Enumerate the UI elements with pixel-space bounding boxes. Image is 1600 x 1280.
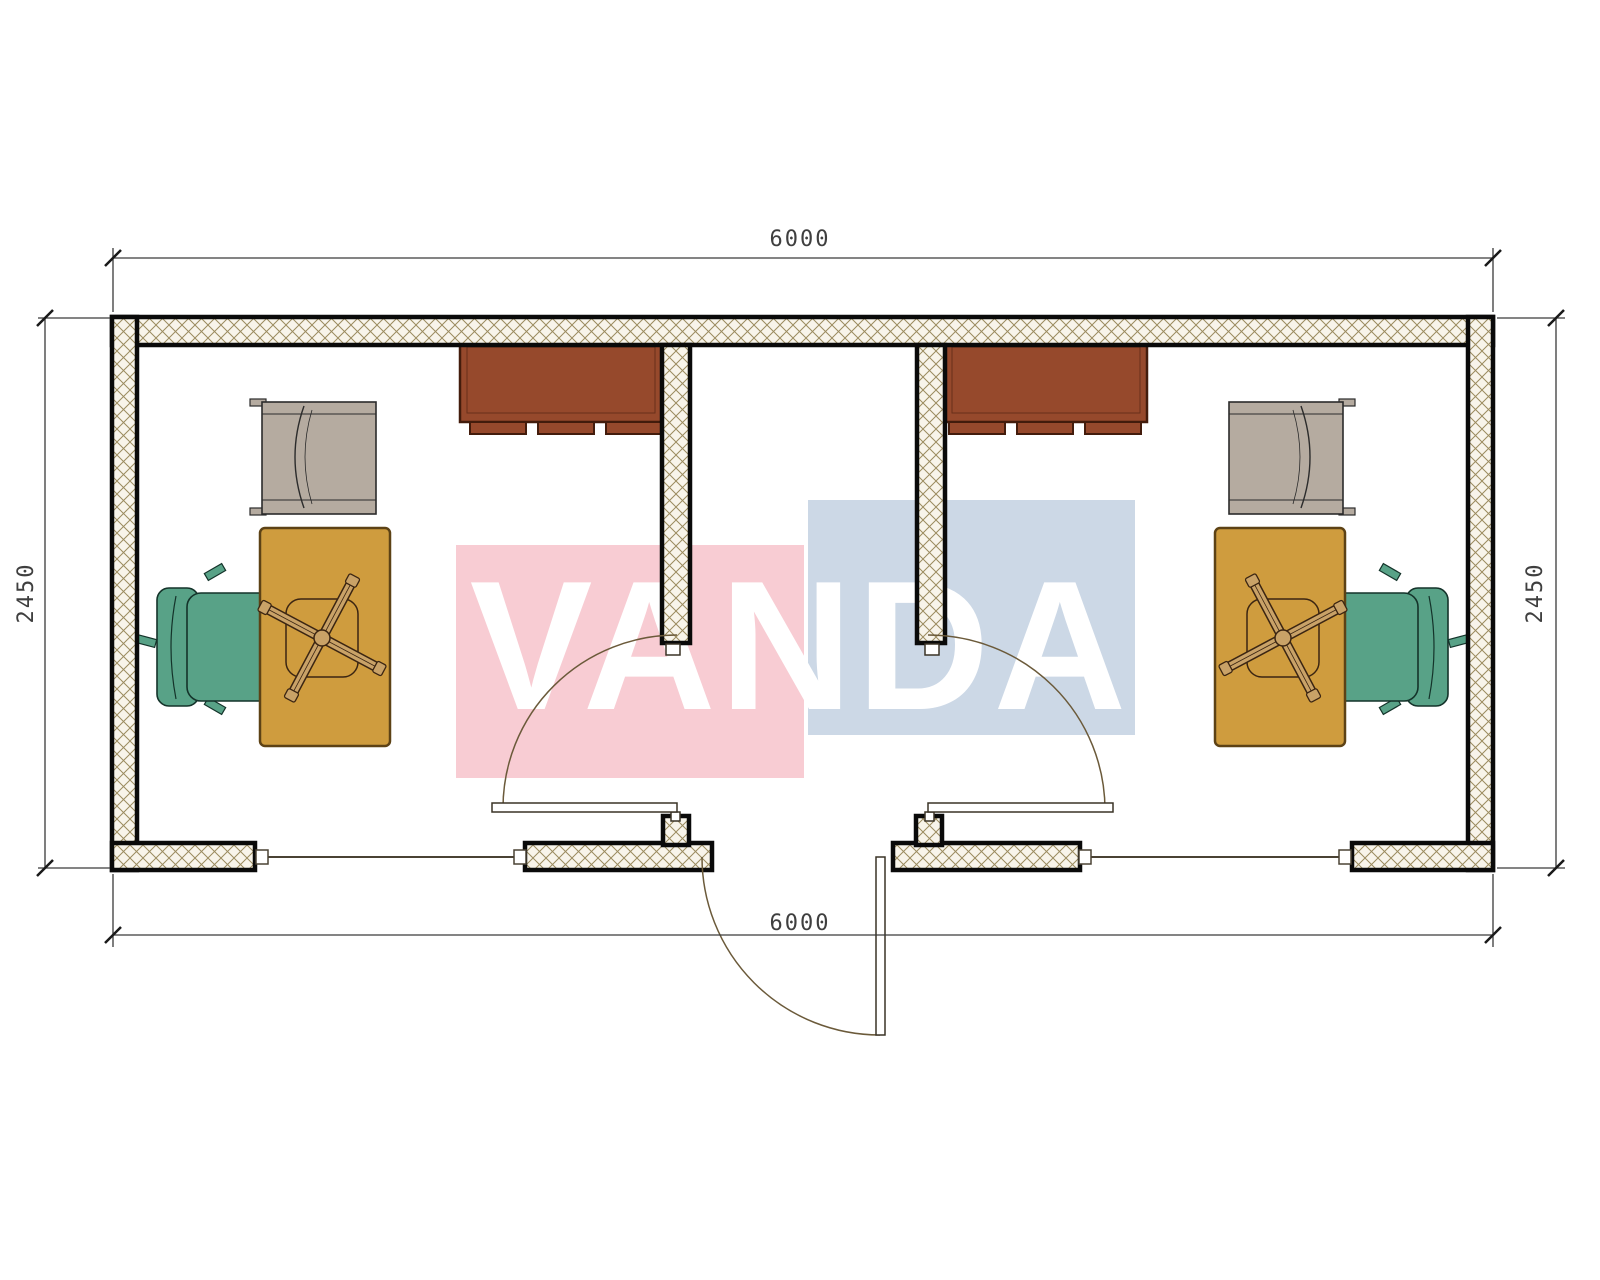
door-hinge-right: [925, 812, 934, 821]
wall-bottom-left-corner: [112, 843, 255, 870]
window-frame: [1079, 850, 1091, 864]
floor-plan-canvas: VANDA: [0, 0, 1600, 1280]
wall-top: [112, 317, 1493, 345]
dimension-label-right-depth: 2450: [1525, 493, 1547, 693]
door-swing-arc-left-room: [503, 635, 677, 808]
dimension-label-bottom-width: 6000: [700, 913, 900, 935]
cabinet-right: [945, 340, 1147, 434]
dimension-label-top-width: 6000: [700, 229, 900, 251]
wall-bottom-right-corner: [1352, 843, 1493, 870]
cabinet-left: [460, 340, 662, 434]
dimension-label-left-depth: 2450: [16, 493, 38, 693]
wall-left: [112, 317, 137, 870]
armchair-left: [250, 399, 376, 515]
door-swing-arc-entrance: [702, 857, 880, 1035]
partition-wall-right: [917, 345, 945, 643]
door-leaf-right-room: [928, 803, 1113, 812]
window-frame: [1339, 850, 1351, 864]
door-leaf-entrance: [876, 857, 885, 1035]
door-swing-arc-right-room: [928, 635, 1105, 810]
windows-layer: [256, 850, 1351, 864]
plan-drawing: [0, 0, 1600, 1280]
partition-wall-left: [662, 345, 690, 643]
door-leaf-left-room: [492, 803, 677, 812]
door-frame-right: [925, 644, 939, 655]
wall-right: [1468, 317, 1493, 870]
window-frame: [256, 850, 268, 864]
furniture-layer: [135, 340, 1469, 746]
armchair-right: [1229, 399, 1355, 515]
door-hinge-left: [671, 812, 680, 821]
window-frame: [514, 850, 526, 864]
door-frame-left: [666, 644, 680, 655]
doors-layer: [492, 635, 1113, 1035]
